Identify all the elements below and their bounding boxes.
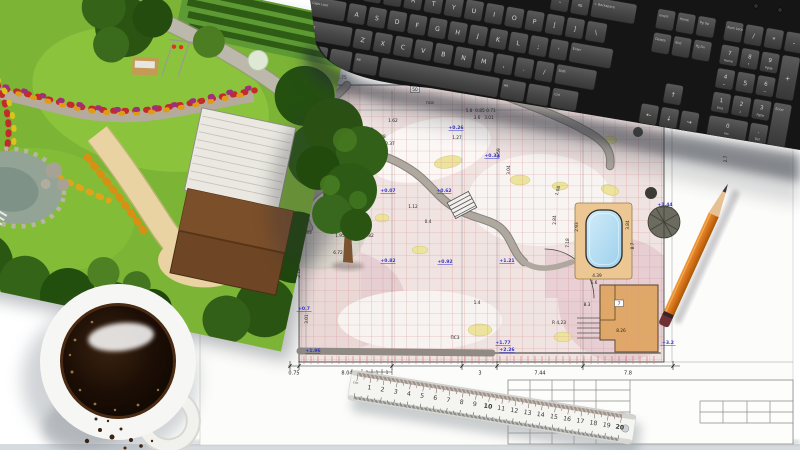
plan-dimension-label: 0.4 (425, 219, 432, 225)
plan-elevation-label: +0.92 (437, 259, 452, 265)
ruler-number: 13 (523, 409, 532, 417)
ruler-number: 16 (563, 415, 572, 423)
plan-dimension-label: 1.4 (474, 300, 481, 306)
keyboard-key (691, 39, 712, 62)
plan-dimension-label: 3.04 (506, 165, 512, 175)
plan-elevation-label: +0.82 (380, 258, 395, 264)
plan-dimension-label: 1.12 (408, 204, 418, 210)
plan-dimension-label: ПС3 (451, 335, 460, 341)
plan-elevation-label: +3.2 (662, 340, 674, 346)
ruler-number: 11 (497, 405, 506, 413)
mini-chain-label: 1 (386, 370, 389, 375)
ruler-number: 15 (549, 413, 558, 421)
plan-elevation-label: +0.62 (436, 188, 451, 194)
ruler-number: 18 (589, 419, 598, 427)
scene-photo: 0.758.0437.447.81111 2.751.62псв502.080.… (0, 0, 800, 450)
keyboard-key (655, 8, 676, 31)
bottom-dimension-label: 7.8 (624, 371, 632, 377)
plan-dimension-label: 8.3 (584, 302, 591, 308)
ruler-number: 12 (510, 407, 519, 415)
ruler-number: 19 (602, 421, 611, 429)
plan-dimension-label: 7.18 (565, 238, 571, 248)
keyboard-key (550, 87, 579, 111)
plan-dimension-label: 4.39 (592, 273, 602, 279)
keyboard-key (675, 12, 696, 35)
ruler-number: 17 (576, 417, 585, 425)
pool-area (575, 203, 632, 279)
plan-dimension-label: 2.93 (574, 222, 580, 232)
plan-dimension-label: 5.6 (591, 280, 598, 286)
plan-dimension-label: 6.72 (333, 250, 343, 256)
keyboard-led (778, 8, 782, 12)
plan-elevation-label: +0.33 (484, 153, 499, 159)
plan-elevation-label: +1.44 (657, 202, 672, 208)
desk-photo: 0.758.0437.447.81111 2.751.62псв502.080.… (0, 0, 800, 450)
ruler-number: 14 (536, 411, 545, 419)
plan-elevation-label: +1.96 (305, 348, 320, 354)
keyboard-key (526, 83, 551, 107)
plan-dimension-label: 1.27 (452, 135, 462, 141)
plan-dimension-label: 2.84 (552, 215, 558, 225)
plan-dimension-label: R 4,23 (552, 320, 566, 326)
plan-dimension-label: 3.84 (625, 220, 631, 230)
plan-edge-ticks (300, 356, 660, 364)
bottom-dimension-label: 3 (478, 371, 481, 377)
plan-elevation-label: +2.26 (499, 347, 514, 353)
keyboard-key (499, 78, 526, 102)
keyboard-key (671, 36, 692, 59)
keyboard-key (352, 52, 379, 76)
plan-elevation-label: +1.21 (499, 258, 514, 264)
keyboard-key (723, 20, 744, 43)
keyboard-led (754, 4, 758, 8)
plan-dimension-label: 7 (618, 301, 621, 307)
plan-dimension-label: 8.7 (630, 242, 636, 249)
plan-elevation-label: +0.07 (380, 188, 395, 194)
plan-dimension-label: 3.01 (304, 314, 310, 324)
keyboard-key (695, 16, 716, 39)
bottom-dimension-label: 0.75 (288, 371, 299, 377)
plan-elevation-label: +1.77 (495, 340, 510, 346)
plan-dimension-label: 8.26 (616, 328, 626, 334)
coffee-surface (63, 306, 173, 416)
keyboard-key (651, 32, 672, 55)
bottom-dimension-label: 7.44 (534, 371, 545, 377)
